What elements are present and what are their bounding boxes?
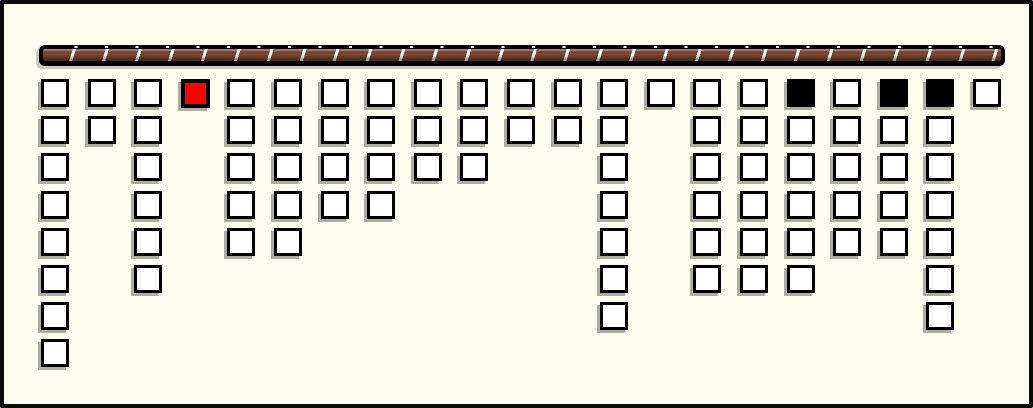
board-square[interactable] [41, 116, 69, 144]
board-square[interactable] [740, 116, 768, 144]
board-square[interactable] [787, 153, 815, 181]
board-square[interactable] [321, 79, 349, 107]
board-square[interactable] [693, 191, 721, 219]
board-square[interactable] [460, 153, 488, 181]
board-square[interactable] [321, 153, 349, 181]
board-square[interactable] [973, 79, 1001, 107]
board-square[interactable] [600, 302, 628, 330]
board-square[interactable] [460, 79, 488, 107]
board-square[interactable] [41, 339, 69, 367]
board-square-black[interactable] [880, 79, 908, 107]
board-square[interactable] [926, 191, 954, 219]
board-square[interactable] [833, 228, 861, 256]
board-square-black[interactable] [787, 79, 815, 107]
board-square[interactable] [787, 116, 815, 144]
board-square[interactable] [507, 116, 535, 144]
board-square[interactable] [693, 116, 721, 144]
board-square[interactable] [926, 228, 954, 256]
board-square[interactable] [227, 228, 255, 256]
board-square[interactable] [274, 153, 302, 181]
board-square[interactable] [740, 191, 768, 219]
board-square[interactable] [274, 228, 302, 256]
board-square[interactable] [41, 191, 69, 219]
board-square[interactable] [41, 153, 69, 181]
board-square[interactable] [880, 116, 908, 144]
board-square[interactable] [227, 153, 255, 181]
board-square[interactable] [41, 79, 69, 107]
board-square[interactable] [367, 191, 395, 219]
board-square[interactable] [41, 228, 69, 256]
board-square[interactable] [880, 153, 908, 181]
board-square[interactable] [41, 265, 69, 293]
board-square[interactable] [600, 79, 628, 107]
board-square[interactable] [414, 153, 442, 181]
board-square[interactable] [460, 116, 488, 144]
board-square[interactable] [693, 228, 721, 256]
board-square[interactable] [787, 265, 815, 293]
board-square[interactable] [274, 116, 302, 144]
board-square[interactable] [507, 79, 535, 107]
board-square[interactable] [693, 79, 721, 107]
board-square[interactable] [134, 228, 162, 256]
board-square[interactable] [227, 116, 255, 144]
board-square[interactable] [693, 153, 721, 181]
board-square[interactable] [414, 79, 442, 107]
game-window [0, 0, 1033, 408]
board-square[interactable] [227, 191, 255, 219]
board-square[interactable] [274, 191, 302, 219]
board-square[interactable] [274, 79, 302, 107]
board-square[interactable] [554, 116, 582, 144]
board-square[interactable] [367, 153, 395, 181]
board-square[interactable] [880, 228, 908, 256]
board-square[interactable] [833, 116, 861, 144]
board-square[interactable] [227, 79, 255, 107]
board-square[interactable] [833, 191, 861, 219]
board-square[interactable] [926, 265, 954, 293]
board-square[interactable] [134, 265, 162, 293]
board-square[interactable] [134, 191, 162, 219]
board-square[interactable] [134, 153, 162, 181]
board-square[interactable] [647, 79, 675, 107]
board-square[interactable] [600, 153, 628, 181]
board-square[interactable] [926, 153, 954, 181]
board-square[interactable] [600, 191, 628, 219]
board-square[interactable] [41, 302, 69, 330]
board-square[interactable] [554, 79, 582, 107]
board-square[interactable] [740, 153, 768, 181]
board-square-black[interactable] [926, 79, 954, 107]
board-square[interactable] [740, 265, 768, 293]
board-square[interactable] [414, 116, 442, 144]
board-square[interactable] [787, 228, 815, 256]
board-square[interactable] [787, 191, 815, 219]
board-square[interactable] [134, 116, 162, 144]
board-square[interactable] [926, 302, 954, 330]
rope-stripes [43, 49, 1001, 61]
board-square[interactable] [600, 116, 628, 144]
board-square[interactable] [833, 79, 861, 107]
board-square[interactable] [880, 191, 908, 219]
board-square[interactable] [321, 191, 349, 219]
board-square[interactable] [321, 116, 349, 144]
board-square[interactable] [367, 116, 395, 144]
board-square[interactable] [833, 153, 861, 181]
board-square[interactable] [926, 116, 954, 144]
board-square[interactable] [693, 265, 721, 293]
board-square[interactable] [134, 79, 162, 107]
board-square[interactable] [88, 79, 116, 107]
board-square[interactable] [88, 116, 116, 144]
striped-rope-bar [39, 45, 1005, 66]
board-square[interactable] [600, 265, 628, 293]
board-square[interactable] [740, 228, 768, 256]
board-square[interactable] [740, 79, 768, 107]
board-square-red[interactable] [181, 79, 210, 108]
board-square[interactable] [600, 228, 628, 256]
board-square[interactable] [367, 79, 395, 107]
